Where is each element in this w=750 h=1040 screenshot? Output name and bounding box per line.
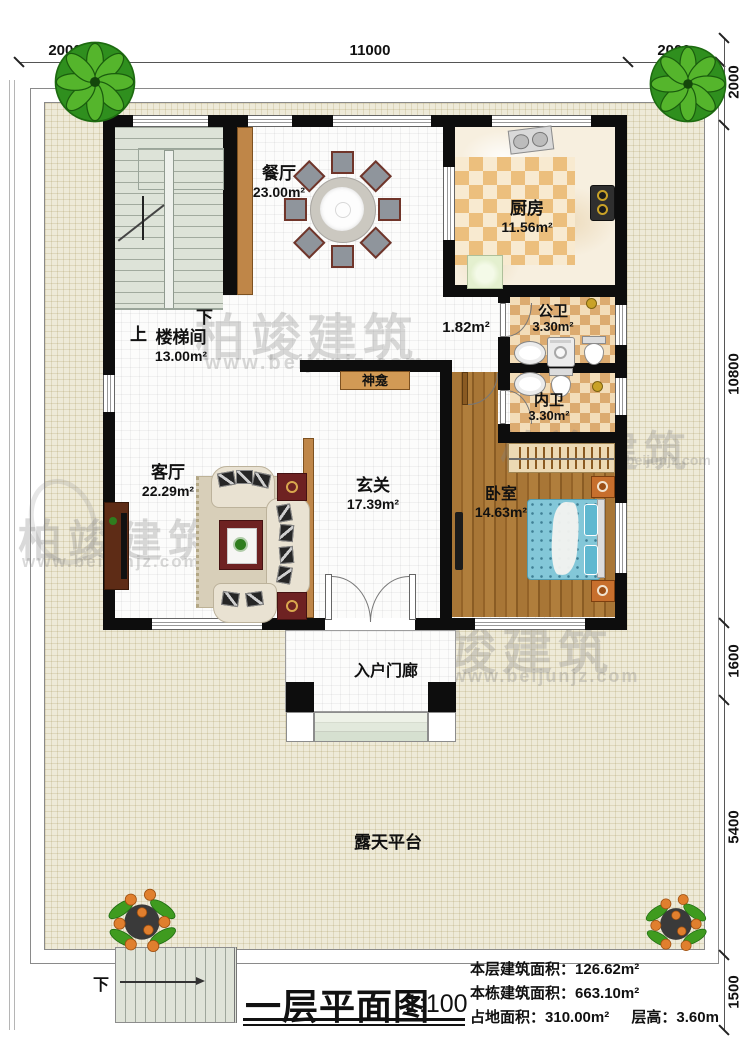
plant-bottom-right [638, 888, 714, 960]
kitchen-counter [467, 255, 503, 289]
title-underline-2 [243, 1024, 465, 1026]
floor-plan-page: 2000 11000 2000 2000 10800 1600 5400 150… [0, 0, 750, 1040]
sofa-cushion [245, 591, 264, 607]
entry-door-leaf-right [409, 574, 416, 620]
shower-head-icon [586, 298, 597, 309]
window-public-bath-right [615, 305, 627, 345]
entry-door-leaf-left [325, 574, 332, 620]
plant-top-left [53, 40, 137, 124]
stats-line-2: 本栋建筑面积：663.10m² [470, 982, 639, 1003]
sofa-cushion [279, 524, 294, 542]
side-table [277, 473, 307, 501]
plan-title: 一层平面图 [245, 978, 430, 1030]
plant-top-right [648, 44, 728, 124]
kitchen-stove [590, 185, 615, 221]
stairwell-wood-partition [237, 127, 253, 295]
terrace-label: 露天平台 [354, 828, 422, 853]
room-label-stairwell: 楼梯间13.00m² [155, 328, 207, 364]
plan-scale: 1:100 [405, 990, 468, 1019]
outdoor-stairs-arrow [120, 981, 198, 983]
bedroom-closet [508, 443, 615, 473]
nightstand [591, 580, 615, 602]
porch-column [428, 682, 456, 712]
window-stairhall-left [103, 375, 115, 412]
sofa-cushion [221, 591, 240, 607]
sofa-cushion [276, 503, 293, 522]
bed-headboard [597, 499, 605, 578]
dining-chair [331, 151, 354, 174]
sofa-cushion [236, 470, 253, 484]
coffee-table [219, 520, 263, 570]
porch-label: 入户门廊 [354, 657, 418, 681]
outdoor-stairs-arrowhead [196, 977, 205, 985]
public-bath-sink [514, 341, 546, 365]
dining-table-center [335, 202, 351, 218]
tv-cabinet [104, 502, 129, 590]
room-label-public-bath: 公卫3.30m² [532, 303, 573, 335]
wall-bath-bottom [498, 432, 615, 443]
stair-down-label: 下 [196, 303, 213, 328]
stair-stringer [164, 150, 174, 310]
nightstand [591, 476, 615, 498]
dining-chair [331, 245, 354, 268]
stair-landing-outline [138, 148, 224, 190]
dining-chair [284, 198, 307, 221]
stats-line-3: 占地面积：310.00m² 层高：3.60m [470, 1006, 719, 1027]
stats-line-1: 本层建筑面积：126.62m² [470, 958, 639, 979]
stair-direction-line [142, 196, 144, 240]
kitchen-sliding-door [443, 167, 455, 240]
outdoor-stairs-down-label: 下 [93, 971, 109, 995]
window-kitchen-top [492, 115, 591, 127]
shrine-label: 神龛 [362, 373, 388, 388]
side-table [277, 592, 307, 620]
dining-chair [378, 198, 401, 221]
wall-bath-left-a [498, 295, 510, 303]
porch-column [286, 682, 314, 712]
dim-right-4: 5400 [726, 810, 743, 843]
dim-right-2: 10800 [726, 353, 743, 395]
dim-right-3: 1600 [726, 644, 743, 677]
wall-bath-left-b [498, 337, 510, 390]
room-label-kitchen: 厨房11.56m² [501, 199, 552, 235]
window-dining-top-2 [333, 115, 431, 127]
bedroom-tv [455, 512, 463, 570]
window-dining-top-1 [248, 115, 292, 127]
window-bedroom-right [615, 503, 627, 573]
dim-right-5: 1500 [726, 975, 743, 1008]
window-stairwell-top [133, 115, 208, 127]
title-block: 一层平面图 1:100 本层建筑面积：126.62m² 本栋建筑面积：663.1… [240, 956, 720, 1036]
stair-up-label: 上 [130, 320, 147, 345]
porch-column-base [428, 712, 456, 742]
dim-top-mid: 11000 [350, 42, 391, 59]
wall-stairwell [223, 115, 237, 295]
plant-bottom-left [100, 882, 184, 962]
shrine-cabinet: 神龛 [340, 371, 410, 390]
corridor-area-label: 1.82m² [442, 319, 490, 336]
dimension-line-right [724, 38, 725, 1030]
porch-steps [314, 712, 428, 742]
room-label-inner-bath: 内卫3.30m² [528, 392, 569, 424]
shower-head-icon [592, 381, 603, 392]
title-underline [243, 1018, 465, 1021]
sofa-cushion [217, 471, 236, 488]
room-label-living: 客厅22.29m² [142, 463, 194, 499]
dim-right-1: 2000 [726, 65, 743, 98]
watermark-url: www.beijunjz.com [452, 666, 639, 687]
window-bedroom-bottom [475, 618, 585, 630]
bed-pillow [584, 504, 598, 536]
room-label-bedroom: 卧室14.63m² [475, 486, 527, 520]
bed-pillow [584, 545, 598, 575]
room-label-hall: 玄关17.39m² [347, 476, 399, 512]
sofa-cushion [279, 546, 294, 564]
sofa-cushion [276, 565, 293, 584]
room-label-dining: 餐厅23.00m² [253, 164, 305, 200]
wall-bedroom-left [440, 360, 452, 618]
washing-machine [547, 337, 575, 367]
sheet-border-line [9, 80, 15, 1030]
window-inner-bath-right [615, 378, 627, 415]
public-bath-toilet [582, 336, 606, 366]
porch-column-base [286, 712, 314, 742]
